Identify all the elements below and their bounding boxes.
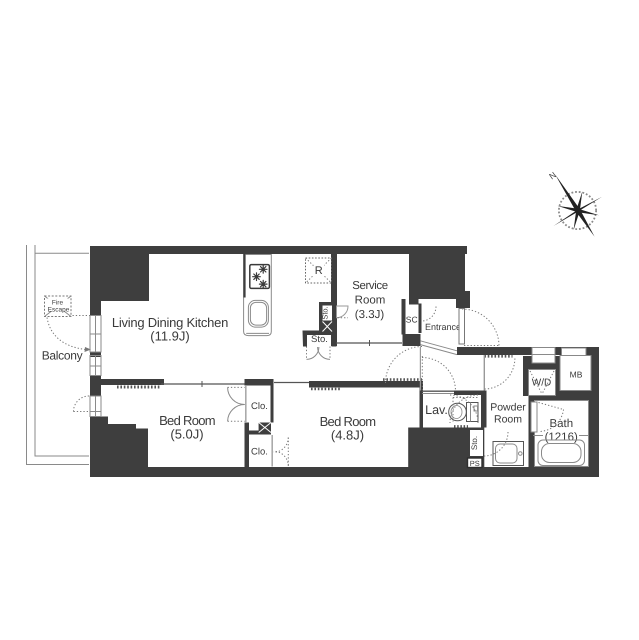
- svg-text:(11.9J): (11.9J): [150, 329, 190, 344]
- svg-text:Clo.: Clo.: [251, 447, 268, 458]
- svg-text:Escape: Escape: [48, 307, 70, 314]
- svg-text:(5.0J): (5.0J): [170, 427, 203, 442]
- svg-text:Bath: Bath: [549, 418, 573, 430]
- svg-text:Clo.: Clo.: [251, 401, 268, 412]
- svg-text:Balcony: Balcony: [42, 349, 83, 363]
- svg-text:Room: Room: [494, 414, 522, 426]
- svg-text:Powder: Powder: [490, 402, 526, 414]
- svg-text:Entrance: Entrance: [425, 322, 461, 332]
- svg-text:Room: Room: [355, 295, 386, 307]
- svg-text:Sto.: Sto.: [470, 436, 479, 450]
- svg-text:(4.8J): (4.8J): [331, 428, 364, 443]
- svg-text:(3.3J): (3.3J): [355, 309, 385, 321]
- svg-text:(1216): (1216): [545, 432, 578, 444]
- svg-text:MB: MB: [570, 370, 583, 380]
- svg-text:SC: SC: [406, 315, 418, 325]
- svg-text:Service: Service: [352, 280, 388, 292]
- svg-text:Sto.: Sto.: [320, 306, 329, 319]
- svg-text:R: R: [315, 265, 323, 277]
- svg-text:PS: PS: [470, 459, 480, 468]
- svg-text:W/D: W/D: [532, 378, 551, 389]
- svg-text:Sto.: Sto.: [311, 334, 328, 345]
- svg-text:Fire: Fire: [52, 300, 64, 307]
- svg-text:Lav.: Lav.: [425, 403, 448, 417]
